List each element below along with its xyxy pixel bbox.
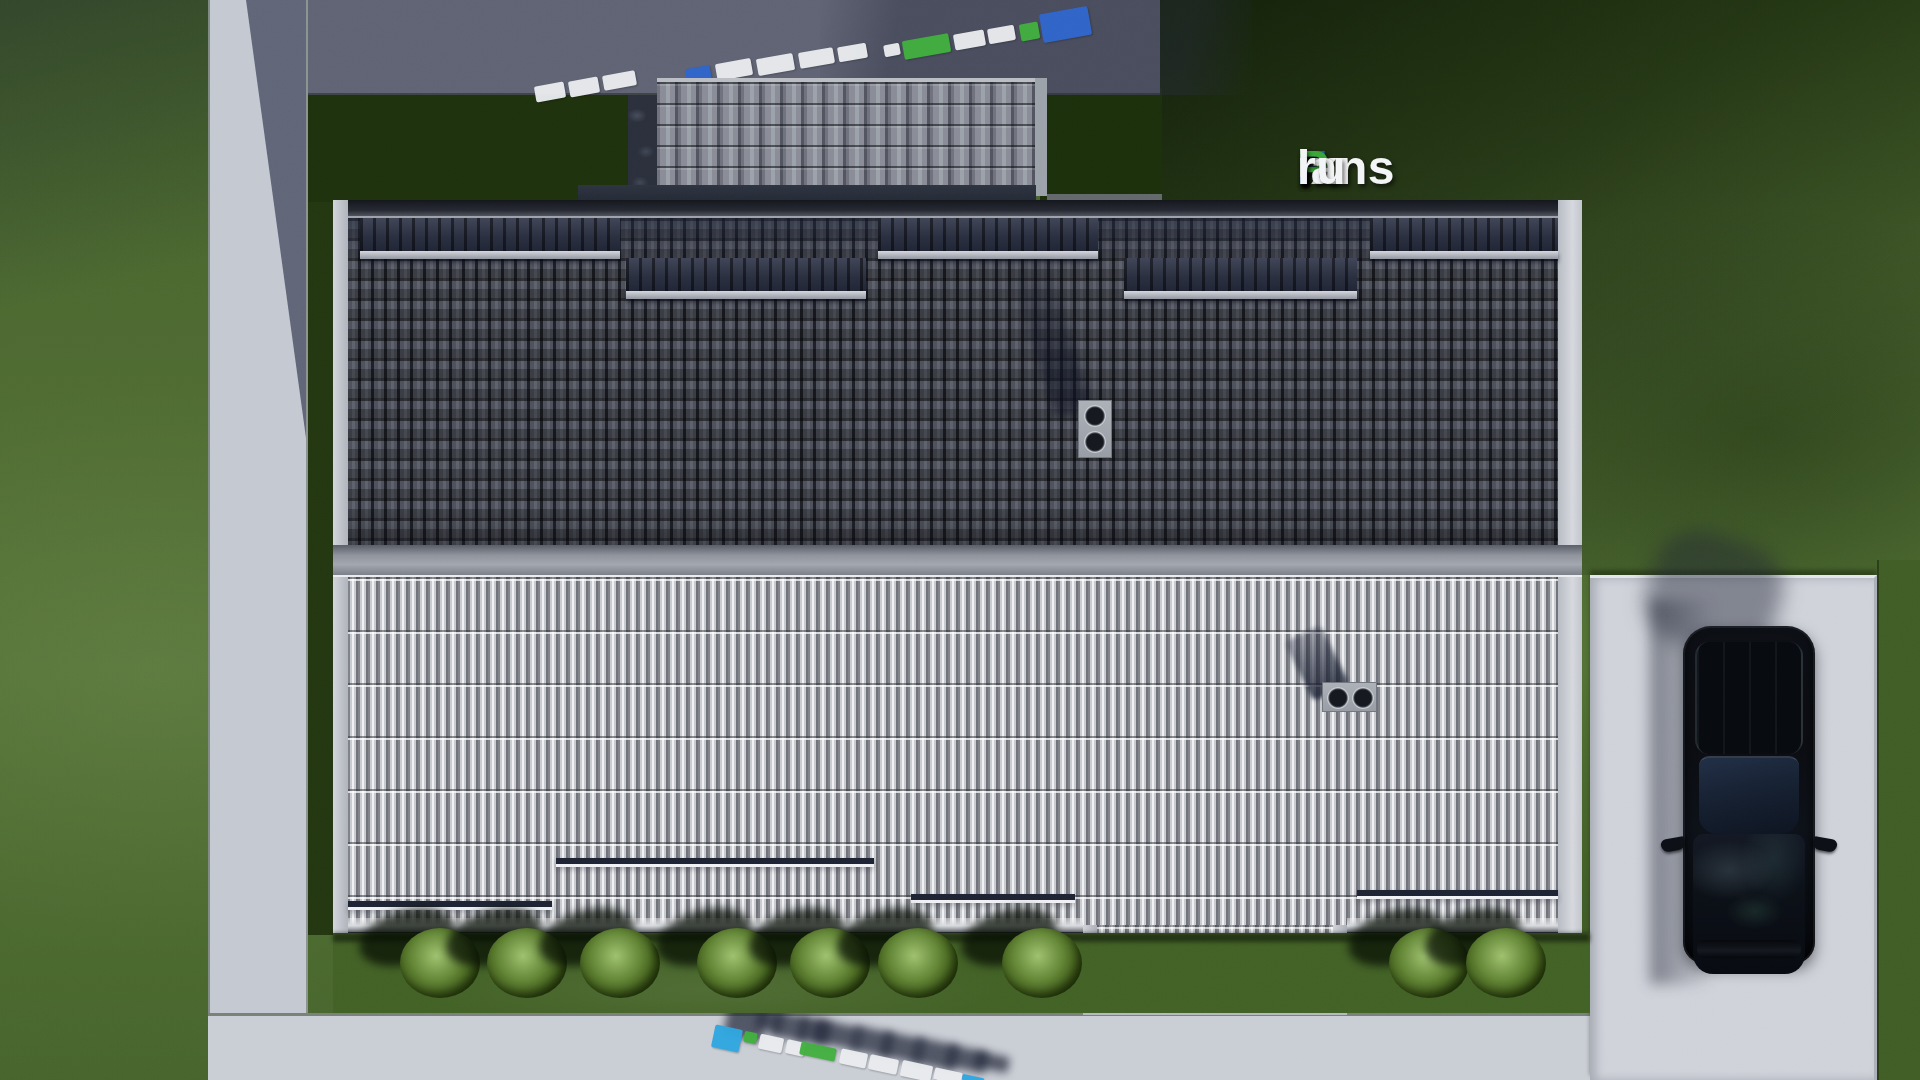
parked-car [1683, 626, 1815, 964]
bush-row [0, 0, 1920, 1080]
bush [1466, 928, 1546, 1002]
car-front-bumper [1697, 940, 1801, 958]
bush-foliage [1466, 928, 1546, 998]
car-mirror-left [1660, 836, 1686, 853]
bush-foliage [878, 928, 958, 998]
bush [878, 928, 958, 1002]
aerial-house-render: FixPlans.ru [0, 0, 1920, 1080]
bush [1002, 928, 1082, 1002]
bush-foliage [580, 928, 660, 998]
bush-foliage [1002, 928, 1082, 998]
bush [580, 928, 660, 1002]
car-roof [1695, 642, 1803, 754]
car-windshield [1699, 756, 1799, 834]
brand-letter: ru [1297, 144, 1346, 192]
